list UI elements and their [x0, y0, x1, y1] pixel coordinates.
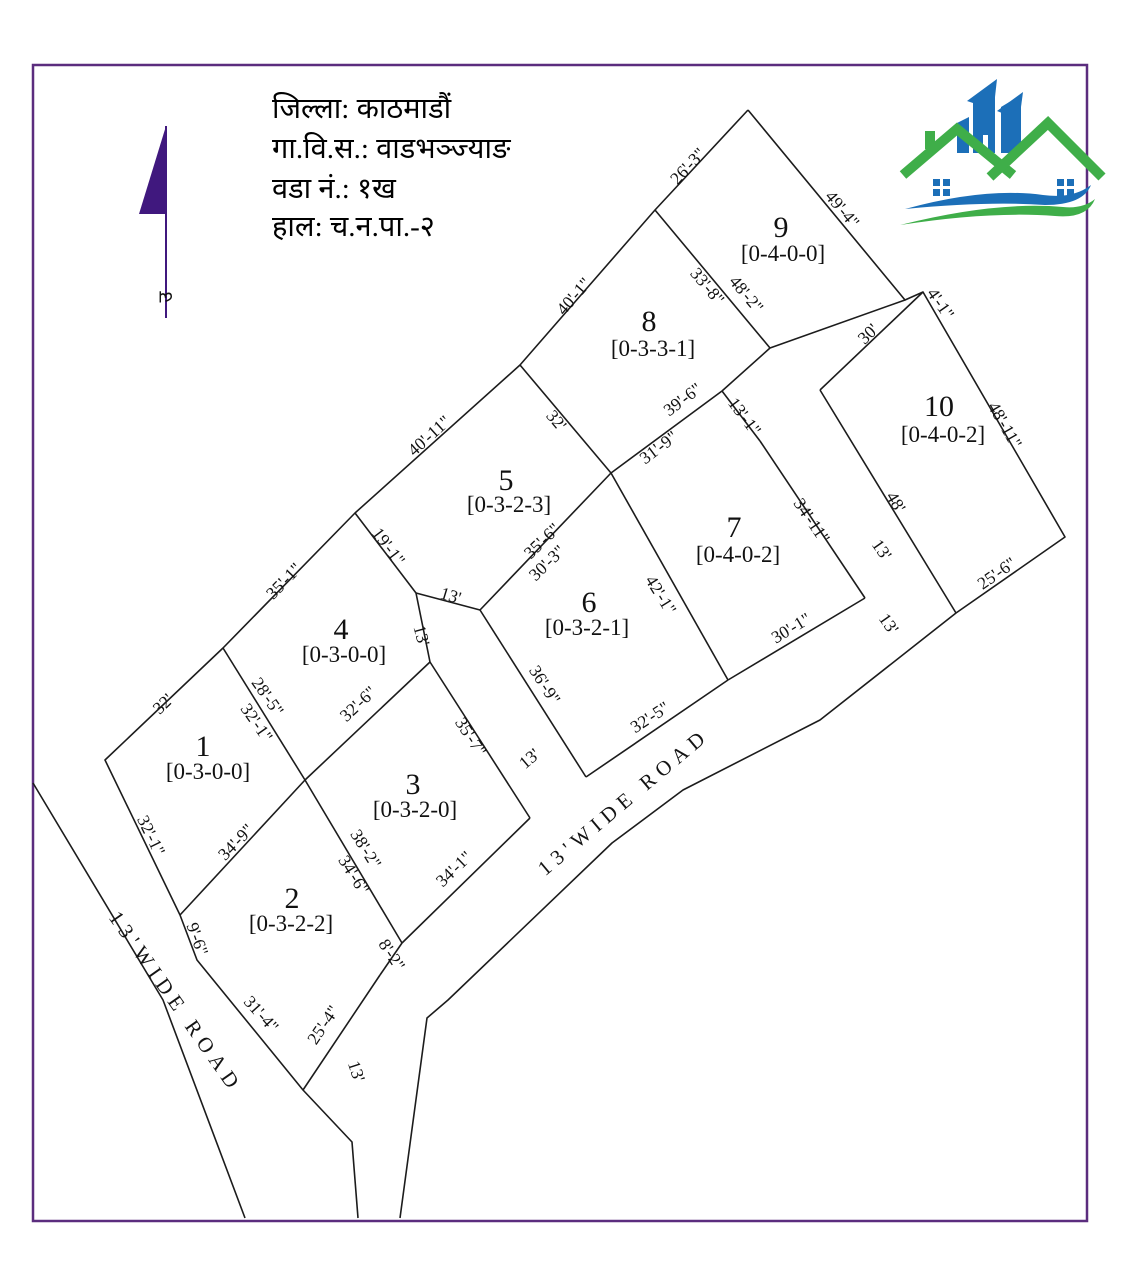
parcel-boundary-east: [400, 110, 1065, 1218]
map-header: जिल्ला: काठमाडौं गा.वि.स.: वाडभञ्ज्याङ व…: [272, 92, 512, 243]
map-border: [33, 65, 1087, 1221]
logo-waves: [900, 185, 1095, 225]
map-svg: जिल्ला: काठमाडौं गा.वि.स.: वाडभञ्ज्याङ व…: [0, 0, 1123, 1280]
dimension-label: 33'-8": [686, 263, 729, 308]
dimension-label: 25'-4": [303, 1001, 343, 1047]
dimension-label: 34'-9": [214, 820, 258, 864]
plot-area: [0-3-3-1]: [611, 336, 695, 361]
plot-area: [0-4-0-2]: [901, 422, 985, 447]
dimension-label: 4'-1": [923, 284, 959, 323]
plot-area: [0-3-2-0]: [373, 797, 457, 822]
plot-number: 9: [774, 211, 789, 244]
dimension-label: 35'-7": [451, 714, 491, 760]
dimension-label: 48': [882, 488, 910, 516]
dimension-label: 9'-6": [182, 920, 212, 958]
dimension-label: 40'-1": [552, 274, 595, 319]
plot-number: 8: [642, 305, 657, 338]
dimension-label: 34'-1": [432, 847, 476, 891]
west-road-edge: [33, 783, 245, 1218]
dimension-label: 31'-9": [635, 426, 681, 467]
plot-number: 7: [727, 511, 742, 544]
dimension-label: 39'-6": [659, 378, 705, 419]
dimension-label: 25'-6": [973, 553, 1019, 594]
dimension-label: 13': [409, 623, 434, 648]
plot-area: [0-4-0-0]: [741, 241, 825, 266]
dimension-label: 13': [875, 609, 903, 637]
plot-area: [0-3-2-1]: [545, 615, 629, 640]
dimension-label: 32'-6": [336, 682, 381, 726]
plot-area: [0-3-0-0]: [302, 642, 386, 667]
dimension-label: 48'-2": [725, 271, 768, 316]
dimension-label: 13': [515, 744, 544, 773]
plot-area: [0-3-0-0]: [166, 759, 250, 784]
dimension-label: 35'-1": [262, 559, 306, 603]
plot-boundary-line: [402, 818, 530, 943]
north-arrow-label: उ: [155, 290, 177, 302]
dimension-label: 26'-3": [666, 144, 710, 189]
plot-boundary-line: [722, 348, 770, 391]
dimension-label: 36'-9": [525, 662, 565, 708]
logo-chimney: [925, 131, 935, 149]
plot-area: [0-3-2-3]: [467, 492, 551, 517]
plot-boundary-line: [770, 300, 905, 348]
road-label-main: 13'WIDE ROAD: [533, 723, 714, 880]
dimension-label: 31'-4": [240, 992, 283, 1037]
company-logo: [900, 79, 1102, 225]
plot-area: [0-3-2-2]: [249, 911, 333, 936]
dimension-label: 42'-1": [641, 572, 680, 619]
header-current: हाल: च.न.पा.-२: [272, 211, 435, 243]
parcel-lines: [33, 110, 1065, 1218]
dimension-label: 32'-1": [133, 812, 170, 859]
dimension-label: 34'-11": [790, 494, 835, 547]
north-arrow-head: [139, 126, 166, 214]
dimension-label: 13': [344, 1058, 369, 1084]
header-district: जिल्ला: काठमाडौं: [272, 92, 452, 125]
plot-area: [0-4-0-2]: [696, 542, 780, 567]
plot-boundary-line: [305, 662, 430, 780]
dimension-label: 30': [853, 319, 882, 348]
dimension-label: 32'-5": [627, 697, 673, 737]
plot-number: 10: [924, 390, 954, 423]
dimension-label: 13': [868, 535, 896, 563]
header-vdc: गा.वि.स.: वाडभञ्ज्याङ: [272, 132, 512, 165]
road-label-west: 13'WIDE ROAD: [104, 906, 248, 1097]
plot-boundary-line: [728, 598, 865, 680]
dimension-label: 19'-1": [368, 523, 409, 569]
dimension-label: 48'-11": [984, 398, 1027, 452]
dimension-label: 32': [542, 406, 571, 435]
dimension-label: 13'-1": [724, 393, 765, 439]
dimension-label: 40'-11": [404, 411, 455, 460]
plot-boundary-line: [611, 473, 728, 680]
north-arrow: उ: [139, 126, 177, 318]
header-ward: वडा नं.: १ख: [272, 173, 397, 205]
